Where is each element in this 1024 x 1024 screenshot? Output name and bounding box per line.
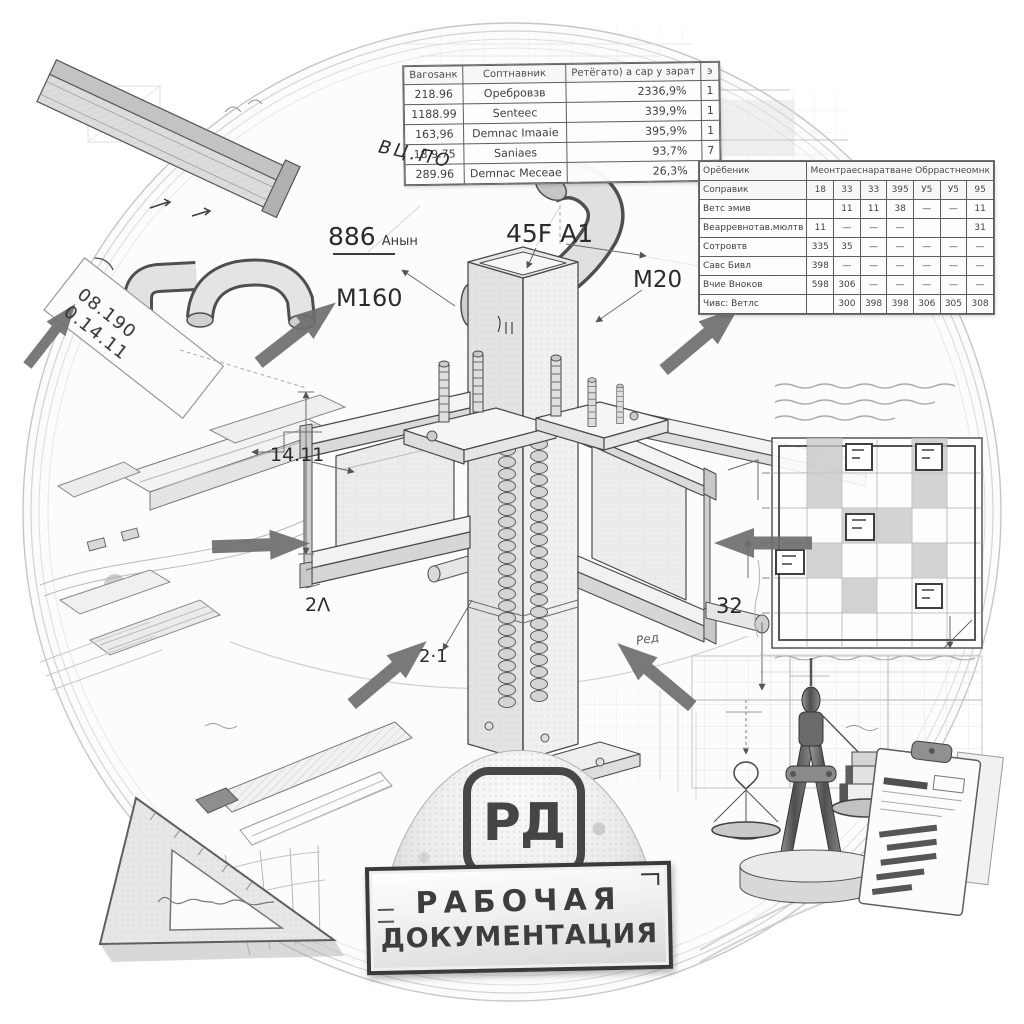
table-row: Ветс эмив111138——11 bbox=[700, 200, 994, 219]
weld-bead bbox=[499, 661, 516, 672]
header-cell: 18 bbox=[807, 181, 834, 200]
cell: 218.96 bbox=[404, 84, 464, 105]
mark-886-suffix: Анын bbox=[382, 234, 418, 249]
weld-bead bbox=[531, 475, 548, 486]
cell: — bbox=[913, 238, 940, 257]
cell: 598 bbox=[807, 276, 834, 295]
cell: — bbox=[913, 257, 940, 276]
cell: — bbox=[913, 276, 940, 295]
table-row: Савс Бивл398—————— bbox=[700, 257, 994, 276]
cell: 398 bbox=[887, 295, 914, 314]
weld-bead bbox=[531, 535, 548, 546]
cell: 11 bbox=[967, 200, 994, 219]
cell: 300 bbox=[834, 295, 861, 314]
cell: — bbox=[887, 276, 914, 295]
weld-bead bbox=[499, 637, 516, 648]
table-row: ОрёбеникМеонтраеснаратване Обррастнеомнк bbox=[700, 162, 994, 181]
cell bbox=[807, 200, 834, 219]
weld-bead bbox=[499, 505, 516, 516]
cell: 398 bbox=[860, 295, 887, 314]
cell: — bbox=[940, 238, 967, 257]
weld-bead bbox=[531, 547, 548, 558]
dimension-2-1-label: 2·1 bbox=[419, 646, 448, 667]
weld-bead bbox=[531, 607, 548, 618]
cell: 163,96 bbox=[405, 124, 465, 145]
weld-bead bbox=[499, 613, 516, 624]
weld-bead bbox=[531, 583, 548, 594]
cell: — bbox=[834, 219, 861, 238]
mark-886-number: 886 bbox=[328, 222, 376, 251]
cell: 398 bbox=[807, 257, 834, 276]
weld-bead bbox=[499, 481, 516, 492]
table-row: Вчие Вноков598306————— bbox=[700, 276, 994, 295]
weld-bead bbox=[531, 571, 548, 582]
cell: — bbox=[887, 257, 914, 276]
cell bbox=[913, 219, 940, 238]
cell: — bbox=[834, 257, 861, 276]
header-cell: Орёбеник bbox=[700, 162, 807, 181]
table-row: Чивс: Ветлс300398398306305308 bbox=[700, 295, 994, 314]
m20-label: M20 bbox=[633, 267, 682, 293]
cell bbox=[807, 295, 834, 314]
cell: 395,9% bbox=[567, 121, 702, 143]
weld-bead bbox=[531, 559, 548, 570]
weld-bead bbox=[531, 619, 548, 630]
cell: 7 bbox=[702, 140, 720, 160]
weld-bead bbox=[531, 643, 548, 654]
cell: Оребровзв bbox=[463, 82, 566, 103]
header-cell: Меонтраеснаратване Обррастнеомнк bbox=[807, 162, 993, 181]
weld-bead bbox=[531, 631, 548, 642]
weld-bead bbox=[499, 541, 516, 552]
weld-bead bbox=[531, 595, 548, 606]
table-row: Веарревнотав.мюлтв11———31 bbox=[700, 219, 994, 238]
rd-emblem-text: РД bbox=[483, 793, 565, 853]
header-cell: У5 bbox=[913, 181, 940, 200]
weld-bead bbox=[499, 457, 516, 468]
cell: 308 bbox=[967, 295, 994, 314]
mark-45f-a1-label: 45F A1 bbox=[506, 219, 593, 248]
cell: Савс Бивл bbox=[700, 257, 807, 276]
header-cell: 33 bbox=[860, 181, 887, 200]
cell: 11 bbox=[834, 200, 861, 219]
cell: Demnac Meceae bbox=[464, 162, 567, 183]
cell: 11 bbox=[807, 219, 834, 238]
cell: — bbox=[860, 257, 887, 276]
weld-bead bbox=[499, 673, 516, 684]
cell: 26,3% bbox=[567, 161, 702, 183]
documentation-plate: РАБОЧАЯ ДОКУМЕНТАЦИЯ bbox=[365, 861, 673, 975]
cell: 305 bbox=[940, 295, 967, 314]
weld-bead bbox=[499, 517, 516, 528]
mark-886-label: 886Анын bbox=[328, 222, 418, 251]
cell: Сотровтв bbox=[700, 238, 807, 257]
table-row: 289.96Demnac Meceae26,3%1 bbox=[405, 160, 720, 184]
cell: — bbox=[940, 257, 967, 276]
weld-bead bbox=[499, 625, 516, 636]
cell: Saniaes bbox=[464, 142, 567, 163]
table-row: Соправик183333395У5У595 bbox=[700, 181, 994, 200]
cell: 306 bbox=[834, 276, 861, 295]
header-cell: 95 bbox=[967, 181, 994, 200]
weld-bead bbox=[531, 487, 548, 498]
weld-bead bbox=[531, 667, 548, 678]
plate-title-line1: РАБОЧАЯ bbox=[415, 882, 622, 921]
cell: 2336,9% bbox=[566, 81, 701, 103]
weld-bead bbox=[499, 493, 516, 504]
cell: 335 bbox=[807, 238, 834, 257]
header-cell: 395 bbox=[887, 181, 914, 200]
cell: — bbox=[860, 276, 887, 295]
header-cell: Ретёгато) а сар у зарат bbox=[566, 63, 701, 83]
weld-bead bbox=[531, 511, 548, 522]
cell: — bbox=[887, 219, 914, 238]
cell: Senteec bbox=[463, 102, 566, 123]
cell: — bbox=[967, 238, 994, 257]
header-cell: Соправик bbox=[700, 181, 807, 200]
weld-bead bbox=[531, 523, 548, 534]
cell: 93,7% bbox=[567, 141, 702, 163]
header-cell: У5 bbox=[940, 181, 967, 200]
dimension-14-11-label: 14.11 bbox=[270, 444, 324, 466]
weld-bead bbox=[499, 553, 516, 564]
weld-bead bbox=[499, 697, 516, 708]
plate-title-line2: ДОКУМЕНТАЦИЯ bbox=[380, 918, 658, 955]
weld-bead bbox=[499, 685, 516, 696]
weld-bead bbox=[499, 565, 516, 576]
header-cell: э bbox=[701, 62, 719, 80]
cell: — bbox=[887, 238, 914, 257]
cell: 1 bbox=[701, 100, 719, 120]
dimension-2l-label: 2Λ bbox=[305, 594, 330, 616]
cell: — bbox=[913, 200, 940, 219]
weld-bead bbox=[499, 469, 516, 480]
cell: — bbox=[860, 238, 887, 257]
table-row: Сотровтв33535————— bbox=[700, 238, 994, 257]
cell: 306 bbox=[913, 295, 940, 314]
weld-beads bbox=[531, 427, 548, 702]
header-cell: 33 bbox=[834, 181, 861, 200]
plate-corner-mark-icon bbox=[641, 873, 659, 885]
mark-886-underline bbox=[333, 253, 395, 255]
weld-bead bbox=[499, 601, 516, 612]
cell: Чивс: Ветлс bbox=[700, 295, 807, 314]
weld-bead bbox=[499, 589, 516, 600]
plate-dash-mark-icon bbox=[378, 909, 394, 923]
cell: — bbox=[940, 200, 967, 219]
cell: Ветс эмив bbox=[700, 200, 807, 219]
cell: Веарревнотав.мюлтв bbox=[700, 219, 807, 238]
weld-bead bbox=[499, 649, 516, 660]
cell: 35 bbox=[834, 238, 861, 257]
weld-bead bbox=[531, 499, 548, 510]
dimension-32-label: 32 bbox=[716, 594, 743, 618]
cell: 339,9% bbox=[566, 101, 701, 123]
weld-bead bbox=[531, 463, 548, 474]
cell: 38 bbox=[887, 200, 914, 219]
cell: — bbox=[860, 219, 887, 238]
cell: 1 bbox=[701, 80, 719, 100]
cell: Demnac Imaaie bbox=[464, 122, 567, 143]
cell: 1188.99 bbox=[404, 104, 464, 125]
weld-bead bbox=[531, 655, 548, 666]
clipboard-sketch bbox=[857, 736, 1005, 918]
cell: 1 bbox=[701, 120, 719, 140]
cell: Вчие Вноков bbox=[700, 276, 807, 295]
header-cell: Вагоsанк bbox=[404, 66, 464, 85]
header-cell: Соптнавник bbox=[463, 64, 566, 83]
weld-bead bbox=[499, 577, 516, 588]
cell: — bbox=[940, 276, 967, 295]
cell bbox=[940, 219, 967, 238]
matrix-table: ОрёбеникМеонтраеснаратване Обррастнеомнк… bbox=[699, 161, 994, 314]
weld-bead bbox=[531, 679, 548, 690]
m160-label: М160 bbox=[336, 284, 403, 312]
weld-beads bbox=[499, 433, 516, 708]
cell: 31 bbox=[967, 219, 994, 238]
illustration-canvas: ВагоsанкСоптнавникРетёгато) а сар у зара… bbox=[0, 0, 1024, 1024]
cell: 11 bbox=[860, 200, 887, 219]
cell: — bbox=[967, 257, 994, 276]
weld-bead bbox=[531, 691, 548, 702]
weld-bead bbox=[531, 451, 548, 462]
cell: — bbox=[967, 276, 994, 295]
weld-bead bbox=[499, 529, 516, 540]
